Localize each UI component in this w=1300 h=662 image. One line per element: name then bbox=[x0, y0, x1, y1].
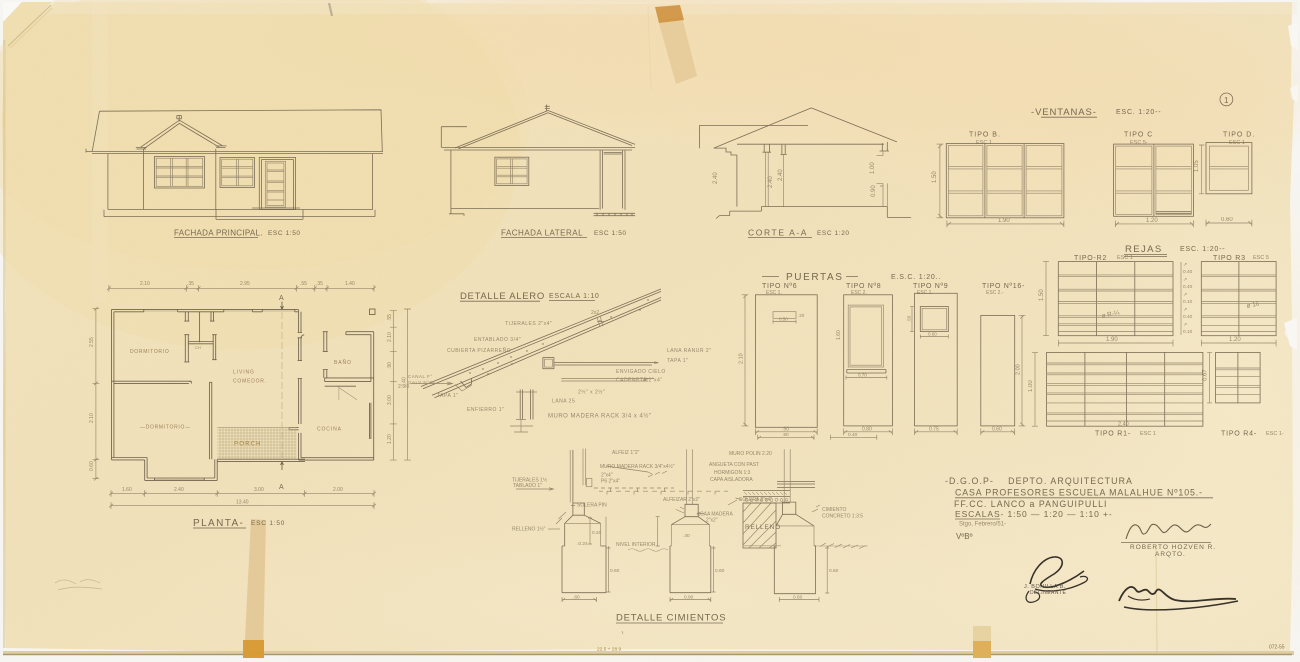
svg-text:1.50: 1.50 bbox=[932, 171, 938, 183]
svg-text:2½" x 2½": 2½" x 2½" bbox=[578, 389, 605, 396]
svg-text:ESC 5: ESC 5 bbox=[1253, 255, 1269, 261]
svg-text:FACHADA PRINCIPAL.: FACHADA PRINCIPAL. bbox=[174, 229, 263, 238]
svg-text:.0.24: .0.24 bbox=[577, 541, 588, 547]
svg-text:CASA PROFESORES ESCUELA MALALH: CASA PROFESORES ESCUELA MALALHUE Nº105.- bbox=[955, 488, 1203, 498]
svg-text:2.40: 2.40 bbox=[1118, 422, 1129, 428]
svg-text:1.60: 1.60 bbox=[836, 330, 842, 340]
svg-text:ARQTO.: ARQTO. bbox=[1155, 551, 1186, 558]
svg-text:A: A bbox=[279, 295, 284, 302]
svg-text:LANA 25: LANA 25 bbox=[552, 399, 575, 405]
svg-text:TIJERALES 2"x4": TIJERALES 2"x4" bbox=[505, 321, 552, 327]
svg-text:1.40: 1.40 bbox=[345, 281, 355, 287]
svg-text:-VENTANAS-: -VENTANAS- bbox=[1031, 107, 1097, 118]
svg-text:CIMIENTO: CIMIENTO bbox=[822, 507, 846, 513]
svg-text:2x2: 2x2 bbox=[591, 310, 599, 316]
svg-text:0.60: 0.60 bbox=[1221, 217, 1233, 223]
svg-text:ENVIGADO CIELO: ENVIGADO CIELO bbox=[616, 369, 666, 375]
svg-text:0.60: 0.60 bbox=[992, 426, 1002, 432]
svg-text:ROBERTO HOZVEN R.: ROBERTO HOZVEN R. bbox=[1130, 544, 1216, 551]
svg-text:1.60: 1.60 bbox=[122, 487, 132, 493]
svg-text:CADENETA 2"x4": CADENETA 2"x4" bbox=[616, 378, 663, 384]
svg-text:HORMIGON 1:3: HORMIGON 1:3 bbox=[714, 470, 751, 476]
svg-text:2.10: 2.10 bbox=[387, 332, 393, 342]
svg-text:1.20: 1.20 bbox=[1146, 218, 1158, 224]
svg-text:PLANTA-: PLANTA- bbox=[193, 518, 244, 529]
svg-text:E.S.C. 1:20..: E.S.C. 1:20.. bbox=[891, 274, 941, 281]
svg-text:TIPO R1-: TIPO R1- bbox=[1095, 431, 1131, 438]
svg-text:2.55: 2.55 bbox=[89, 337, 95, 347]
svg-text:.90: .90 bbox=[782, 432, 789, 438]
svg-text:TAPA 1": TAPA 1" bbox=[437, 393, 459, 399]
svg-text:A: A bbox=[279, 484, 284, 491]
svg-text:CANAL F°: CANAL F° bbox=[408, 374, 433, 379]
svg-text:3.00: 3.00 bbox=[387, 395, 393, 405]
svg-text:SOLERA PIN: SOLERA PIN bbox=[577, 503, 607, 509]
svg-text:ESCALA 1:10: ESCALA 1:10 bbox=[549, 293, 600, 300]
svg-text:COMEDOR.: COMEDOR. bbox=[233, 379, 267, 385]
svg-text:0.50: 0.50 bbox=[779, 317, 788, 322]
svg-text:TAPA 1": TAPA 1" bbox=[667, 358, 689, 364]
svg-text:CH: CH bbox=[195, 345, 201, 350]
svg-text:P6 2"x4": P6 2"x4" bbox=[601, 479, 620, 485]
svg-text:0.90: 0.90 bbox=[684, 595, 694, 601]
svg-text:↗: ↗ bbox=[1183, 308, 1187, 313]
svg-text:0.40: 0.40 bbox=[1183, 314, 1193, 320]
svg-text:-D.G.O.P- DEPTO. ARQUITECTU: -D.G.O.P- DEPTO. ARQUITECTURA bbox=[945, 476, 1133, 486]
svg-text:ENFIERRO 1": ENFIERRO 1" bbox=[467, 407, 504, 413]
svg-text:1.00: 1.00 bbox=[870, 162, 876, 174]
svg-text:2.20: 2.20 bbox=[398, 384, 410, 390]
svg-text:TIPO Nº6: TIPO Nº6 bbox=[762, 283, 797, 290]
svg-text:ESC 1:50: ESC 1:50 bbox=[594, 230, 627, 237]
svg-text:↗: ↗ bbox=[1183, 293, 1187, 298]
svg-text:TIPO Nº9: TIPO Nº9 bbox=[913, 283, 948, 290]
svg-text:.20: .20 bbox=[798, 313, 805, 318]
svg-text:.60: .60 bbox=[573, 595, 580, 601]
svg-text:COCINA: COCINA bbox=[317, 427, 342, 433]
svg-text:2.40: 2.40 bbox=[174, 487, 184, 493]
svg-text:.90: .90 bbox=[782, 426, 789, 432]
svg-text:PUERTAS: PUERTAS bbox=[786, 272, 844, 283]
svg-text:0.60: 0.60 bbox=[793, 595, 803, 601]
svg-text:Stgo, Febrero/51-: Stgo, Febrero/51- bbox=[959, 522, 1006, 528]
svg-text:LANA RANUR 2": LANA RANUR 2" bbox=[667, 348, 711, 354]
svg-text:3.00: 3.00 bbox=[254, 487, 264, 493]
svg-text:TIPO R3: TIPO R3 bbox=[1213, 255, 1246, 262]
svg-text:0.67: 0.67 bbox=[1203, 369, 1209, 381]
svg-text:0.80: 0.80 bbox=[862, 426, 872, 432]
svg-text:—DORMITORIO—: —DORMITORIO— bbox=[140, 425, 191, 431]
svg-text:0.40: 0.40 bbox=[848, 432, 858, 438]
svg-text:.55: .55 bbox=[387, 314, 393, 321]
svg-text:TABLADO 1": TABLADO 1" bbox=[513, 483, 542, 489]
svg-text:CONCRETO 1:3:5: CONCRETO 1:3:5 bbox=[822, 514, 863, 520]
svg-text:ESC 1:50: ESC 1:50 bbox=[268, 230, 301, 237]
svg-text:ENTABLADO 3/4": ENTABLADO 3/4" bbox=[474, 337, 521, 343]
svg-text:.90: .90 bbox=[387, 362, 393, 369]
svg-text:BAÑO: BAÑO bbox=[334, 359, 352, 366]
svg-text:0.20: 0.20 bbox=[592, 530, 602, 536]
svg-text:2.40: 2.40 bbox=[768, 176, 774, 188]
svg-text:.50: .50 bbox=[907, 315, 912, 322]
svg-text:2.10: 2.10 bbox=[89, 413, 95, 423]
svg-text:GALV N°26: GALV N°26 bbox=[408, 380, 435, 385]
svg-text:ESC 1:20: ESC 1:20 bbox=[817, 230, 850, 237]
svg-text:2.10: 2.10 bbox=[140, 281, 150, 287]
svg-text:TIPO-R2: TIPO-R2 bbox=[1074, 255, 1107, 262]
svg-text:TIPO Nº8: TIPO Nº8 bbox=[846, 283, 881, 290]
svg-text:ESC. 1:20--: ESC. 1:20-- bbox=[1180, 246, 1225, 253]
svg-text:ESCALAS- 1:50 — 1:20 — 1:10 +-: ESCALAS- 1:50 — 1:20 — 1:10 +- bbox=[955, 509, 1113, 519]
svg-text:TIPO D.: TIPO D. bbox=[1223, 132, 1255, 139]
svg-text:1.90: 1.90 bbox=[1106, 337, 1118, 343]
svg-text:2.40: 2.40 bbox=[778, 169, 784, 181]
svg-text:TIPO R4-: TIPO R4- bbox=[1221, 431, 1257, 438]
svg-text:1.20: 1.20 bbox=[387, 434, 393, 444]
svg-text:1.90: 1.90 bbox=[998, 218, 1010, 224]
svg-text:2"x2": 2"x2" bbox=[706, 518, 718, 524]
svg-text:22.5 + 28.9: 22.5 + 28.9 bbox=[597, 647, 621, 653]
svg-text:ESC 5-: ESC 5- bbox=[1130, 140, 1148, 146]
svg-text:ALFEIZ 1"2": ALFEIZ 1"2" bbox=[612, 450, 640, 456]
svg-text:PORCH: PORCH bbox=[234, 442, 262, 448]
svg-text:REJAS: REJAS bbox=[1125, 244, 1163, 255]
svg-text:RELLENO 1½": RELLENO 1½" bbox=[512, 526, 546, 533]
svg-text:LIVING: LIVING bbox=[233, 370, 255, 376]
svg-text:2.95: 2.95 bbox=[240, 281, 250, 287]
svg-text:ESC. 1:20--: ESC. 1:20-- bbox=[1116, 109, 1161, 116]
svg-text:ESC 1:50: ESC 1:50 bbox=[251, 520, 285, 527]
svg-text:ESC 1-: ESC 1- bbox=[1266, 431, 1284, 437]
svg-text:MURO POLIN 2.20: MURO POLIN 2.20 bbox=[729, 451, 772, 457]
svg-text:.40: .40 bbox=[683, 533, 690, 539]
svg-text:DELINEANTE: DELINEANTE bbox=[1030, 590, 1067, 596]
svg-text:ESC 1: ESC 1 bbox=[1117, 255, 1133, 261]
svg-text:0.60: 0.60 bbox=[829, 568, 839, 574]
svg-text:CUBIERTA PIZARREÑO: CUBIERTA PIZARREÑO bbox=[447, 347, 511, 354]
svg-text:1.20: 1.20 bbox=[1229, 337, 1241, 343]
svg-text:072-55: 072-55 bbox=[1269, 645, 1285, 651]
svg-text:13.40: 13.40 bbox=[236, 500, 249, 506]
svg-text:0.75: 0.75 bbox=[929, 426, 939, 432]
svg-text:0.70: 0.70 bbox=[858, 373, 867, 378]
svg-text:1: 1 bbox=[1224, 96, 1229, 105]
svg-text:2.00: 2.00 bbox=[333, 487, 343, 493]
svg-text:.35: .35 bbox=[316, 281, 323, 287]
svg-text:1.50: 1.50 bbox=[1039, 289, 1045, 301]
svg-text:↗: ↗ bbox=[1183, 323, 1187, 328]
svg-text:MURO MADERA RACK 3/4 x 4½": MURO MADERA RACK 3/4 x 4½" bbox=[548, 413, 652, 420]
svg-text:TIPO B.: TIPO B. bbox=[969, 132, 1001, 139]
svg-text:2.40: 2.40 bbox=[713, 172, 719, 184]
svg-text:RELLENO: RELLENO bbox=[745, 524, 781, 531]
svg-text:ESC 1: ESC 1 bbox=[976, 140, 992, 146]
svg-text:ESC 2.-: ESC 2.- bbox=[986, 290, 1004, 296]
svg-text:TIPO Nº16-: TIPO Nº16- bbox=[982, 283, 1025, 290]
svg-text:FF.CC. LANCO a PANGUIPULLI: FF.CC. LANCO a PANGUIPULLI bbox=[954, 499, 1107, 509]
svg-text:0.60: 0.60 bbox=[610, 568, 620, 574]
svg-text:TIJERALES 1½: TIJERALES 1½ bbox=[512, 477, 548, 484]
svg-text:FACHADA LATERAL: FACHADA LATERAL bbox=[501, 229, 583, 238]
svg-text:NIVEL INTERIOR: NIVEL INTERIOR bbox=[616, 542, 656, 548]
svg-text:0.60: 0.60 bbox=[89, 461, 95, 471]
svg-text:0.10: 0.10 bbox=[1183, 299, 1193, 305]
svg-text:ALFEIZAR 2"x2": ALFEIZAR 2"x2" bbox=[663, 497, 700, 503]
svg-text:DORMITORIO: DORMITORIO bbox=[130, 349, 169, 355]
svg-text:2.00: 2.00 bbox=[1016, 364, 1022, 375]
svg-text:ESC 1: ESC 1 bbox=[1140, 431, 1156, 437]
svg-text:2.10: 2.10 bbox=[739, 353, 745, 364]
svg-text:0.60: 0.60 bbox=[928, 332, 937, 337]
svg-text:0.90: 0.90 bbox=[871, 185, 877, 197]
svg-text:0.60: 0.60 bbox=[715, 568, 725, 574]
svg-text:.35: .35 bbox=[187, 281, 194, 287]
svg-text:DETALLE CIMIENTOS: DETALLE CIMIENTOS bbox=[616, 613, 726, 624]
svg-text:ANGUETA CON PAST: ANGUETA CON PAST bbox=[709, 462, 759, 468]
svg-text:↗: ↗ bbox=[1183, 278, 1187, 283]
svg-text:SOLERA 2"x4": SOLERA 2"x4" bbox=[739, 497, 772, 503]
svg-text:1.00: 1.00 bbox=[1028, 380, 1034, 392]
svg-text:CAPA AISLADORA: CAPA AISLADORA bbox=[710, 477, 753, 483]
svg-text:TIPO C: TIPO C bbox=[1124, 132, 1153, 139]
svg-text:CORTE A-A: CORTE A-A bbox=[748, 228, 808, 238]
svg-text:↗: ↗ bbox=[1183, 263, 1187, 268]
svg-text:0.40: 0.40 bbox=[1183, 284, 1193, 290]
svg-text:0.10: 0.10 bbox=[1183, 329, 1193, 335]
svg-text:0.40: 0.40 bbox=[1183, 269, 1193, 275]
svg-text:DETALLE ALERO: DETALLE ALERO bbox=[460, 291, 545, 302]
svg-text:1.05: 1.05 bbox=[1194, 160, 1200, 172]
svg-text:VºBº: VºBº bbox=[956, 532, 973, 541]
svg-text:.55: .55 bbox=[300, 281, 307, 287]
